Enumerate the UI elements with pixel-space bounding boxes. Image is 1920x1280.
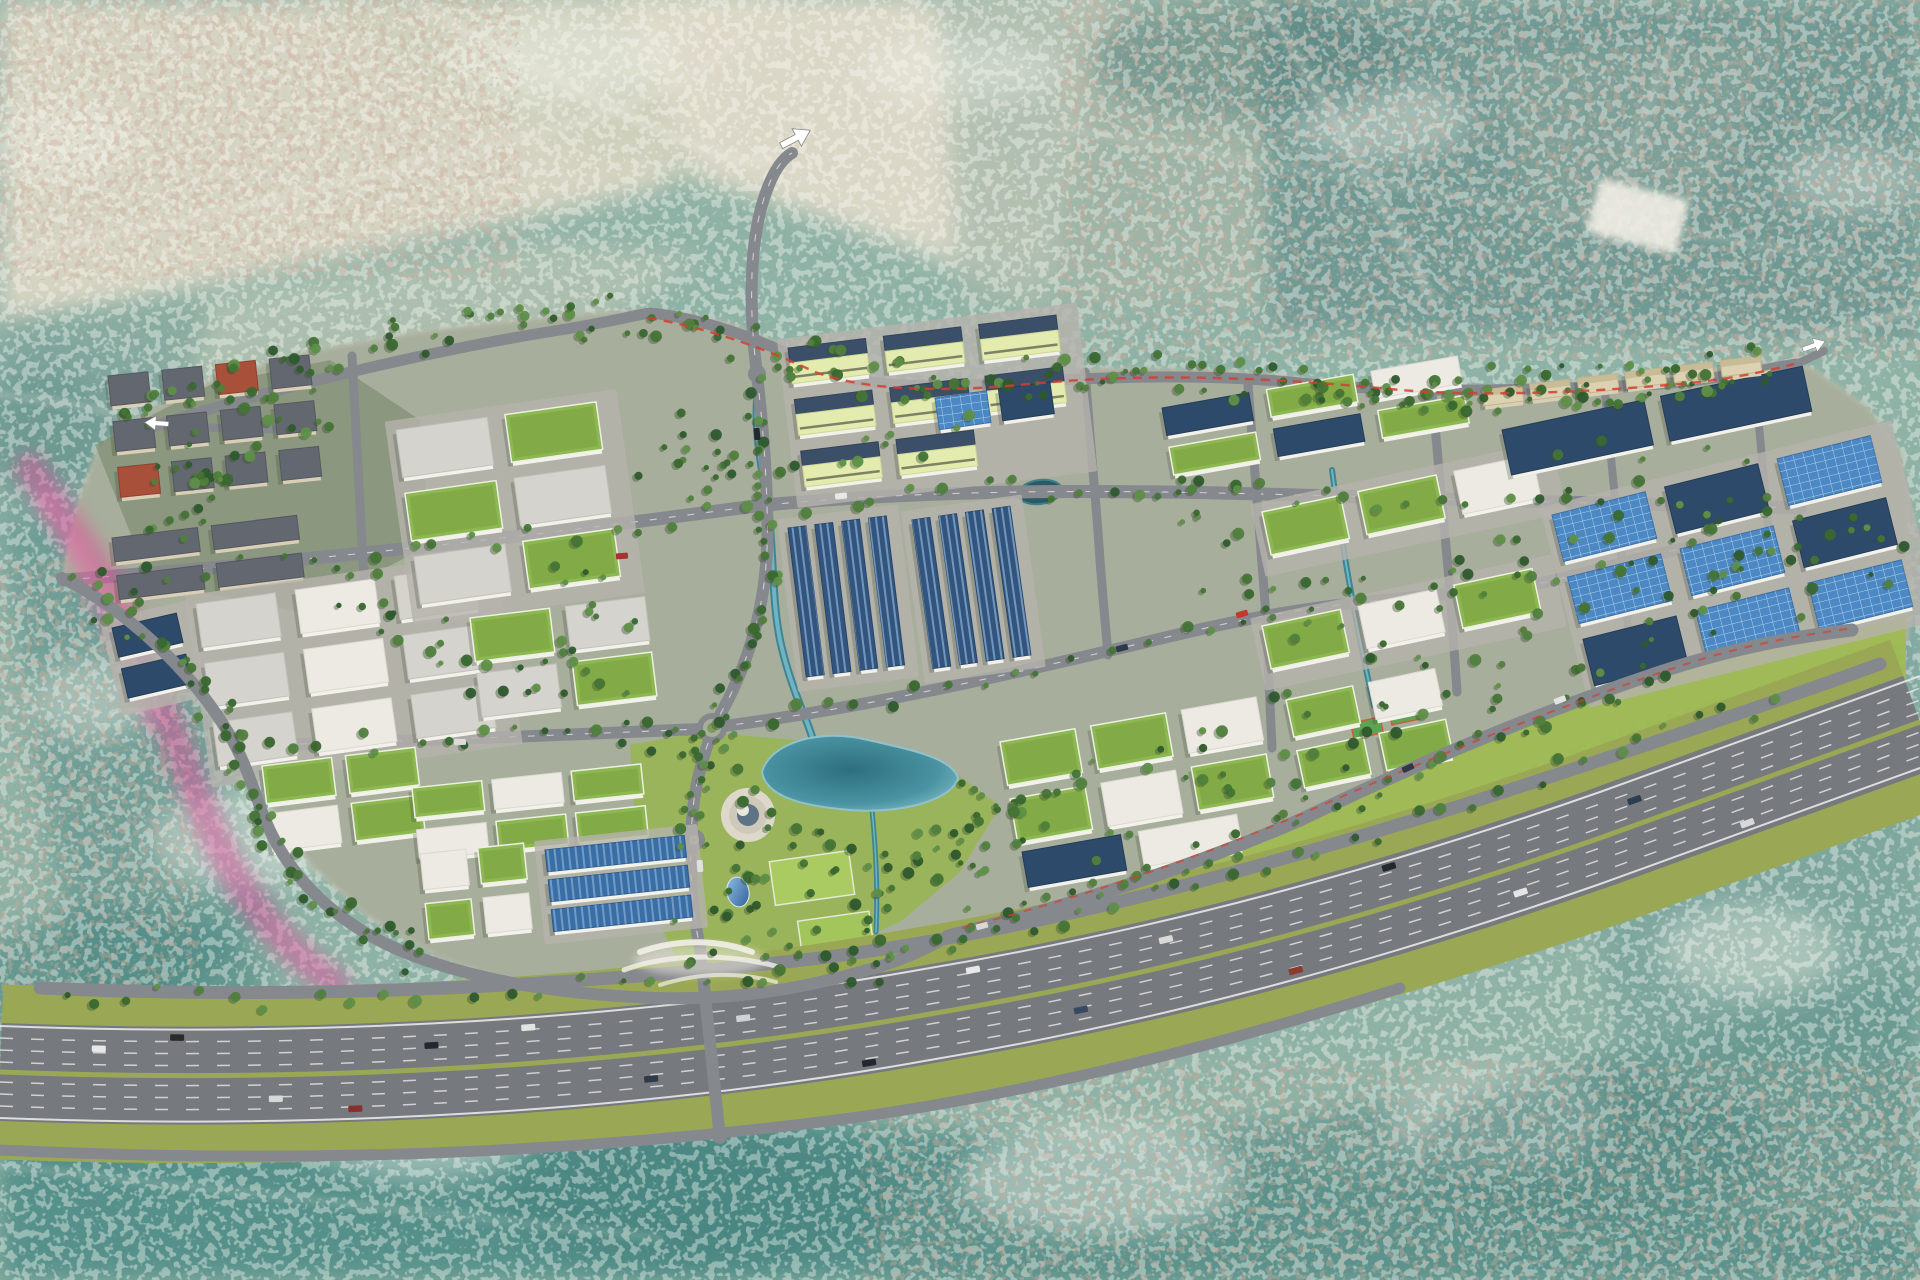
car — [521, 1024, 535, 1032]
car — [697, 860, 704, 872]
car — [348, 1105, 362, 1112]
car — [454, 739, 466, 745]
aerial-masterplan-render — [0, 0, 1920, 1280]
car — [616, 552, 628, 559]
car — [753, 428, 760, 440]
south-solar-sheds — [534, 824, 708, 945]
car — [835, 492, 848, 499]
central-solar-terraces-east — [901, 495, 1046, 684]
car — [170, 1034, 184, 1041]
car — [92, 1045, 106, 1052]
central-solar-terraces-west — [777, 504, 919, 692]
westcentral-factories — [385, 389, 645, 626]
car — [424, 1042, 438, 1049]
car — [269, 1095, 283, 1102]
screenshot-root — [0, 0, 1920, 1280]
